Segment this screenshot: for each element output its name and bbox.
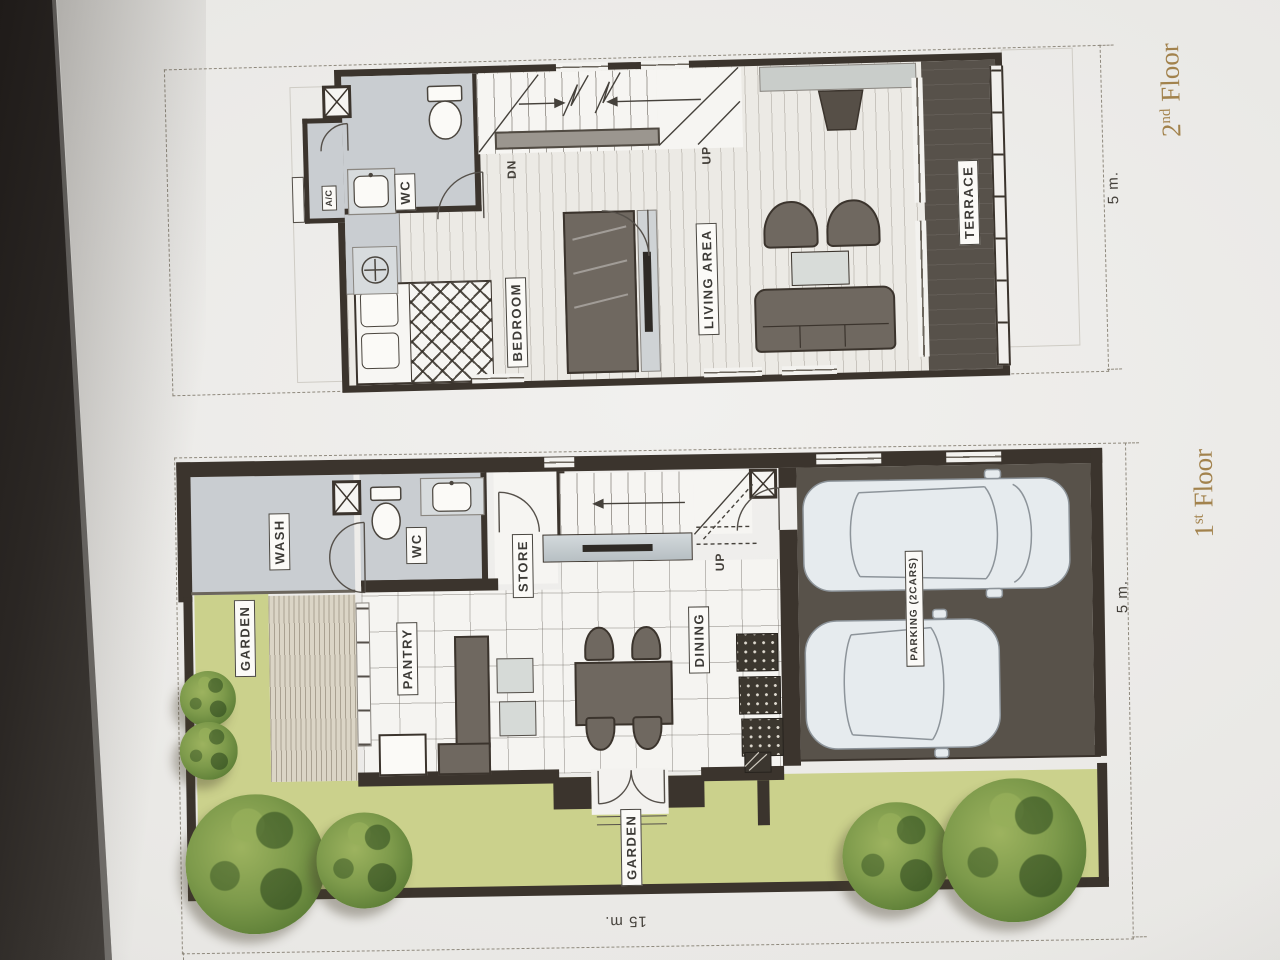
room-label-wash: WASH — [269, 513, 291, 570]
sliding-door — [355, 602, 371, 746]
room-label-dining: DINING — [688, 607, 710, 674]
parking-label: PARKING (2CARS) — [905, 551, 925, 667]
dim-tick — [1124, 442, 1139, 443]
window — [544, 457, 574, 467]
stepping-stone — [739, 676, 782, 715]
garden-label-side: GARDEN — [234, 600, 256, 678]
room-label-pantry: PANTRY — [396, 622, 418, 695]
wall-below-wc — [361, 578, 498, 592]
entrance-post — [553, 777, 591, 810]
parking-wall-west-a — [778, 468, 796, 488]
side-chair — [499, 701, 537, 737]
floor-word: Floor — [1188, 449, 1219, 508]
wall-bottom-right — [701, 766, 784, 781]
kitchen-counter-1f — [454, 636, 491, 749]
kitchen-counter-1f — [438, 743, 491, 776]
side-chair — [496, 658, 534, 694]
room-label-store: STORE — [512, 534, 534, 598]
entrance-post — [666, 775, 704, 808]
garden-label-front: GARDEN — [620, 808, 642, 886]
room-label-wc-1f: WC — [406, 527, 428, 564]
window — [946, 451, 1001, 462]
stair-cut-zone — [693, 470, 752, 534]
cabinet-bar — [583, 544, 653, 552]
stairs-1f — [559, 471, 694, 536]
window — [816, 453, 881, 464]
stepping-stone — [736, 633, 779, 672]
garden-divider-wall — [757, 780, 770, 825]
floor-number: 1 — [1189, 524, 1219, 538]
stepping-stone — [741, 718, 784, 757]
dim-width-1f: 5 m. — [1114, 580, 1132, 613]
floor-ordinal: st — [1191, 514, 1207, 524]
floor-title-1st: 1st Floor — [1188, 449, 1220, 538]
stair-label-up-1f: UP — [714, 552, 726, 571]
parking-area — [796, 463, 1095, 760]
dim-tick — [1132, 936, 1147, 937]
fridge — [379, 734, 428, 777]
floorplan-photo: A/C WC DN UP BEDROOM LIVING AREA TERRACE… — [0, 0, 1280, 960]
wood-deck — [268, 595, 358, 782]
dim-length-1f: 15 m. — [604, 913, 647, 931]
garden-wall-east — [1097, 763, 1109, 881]
